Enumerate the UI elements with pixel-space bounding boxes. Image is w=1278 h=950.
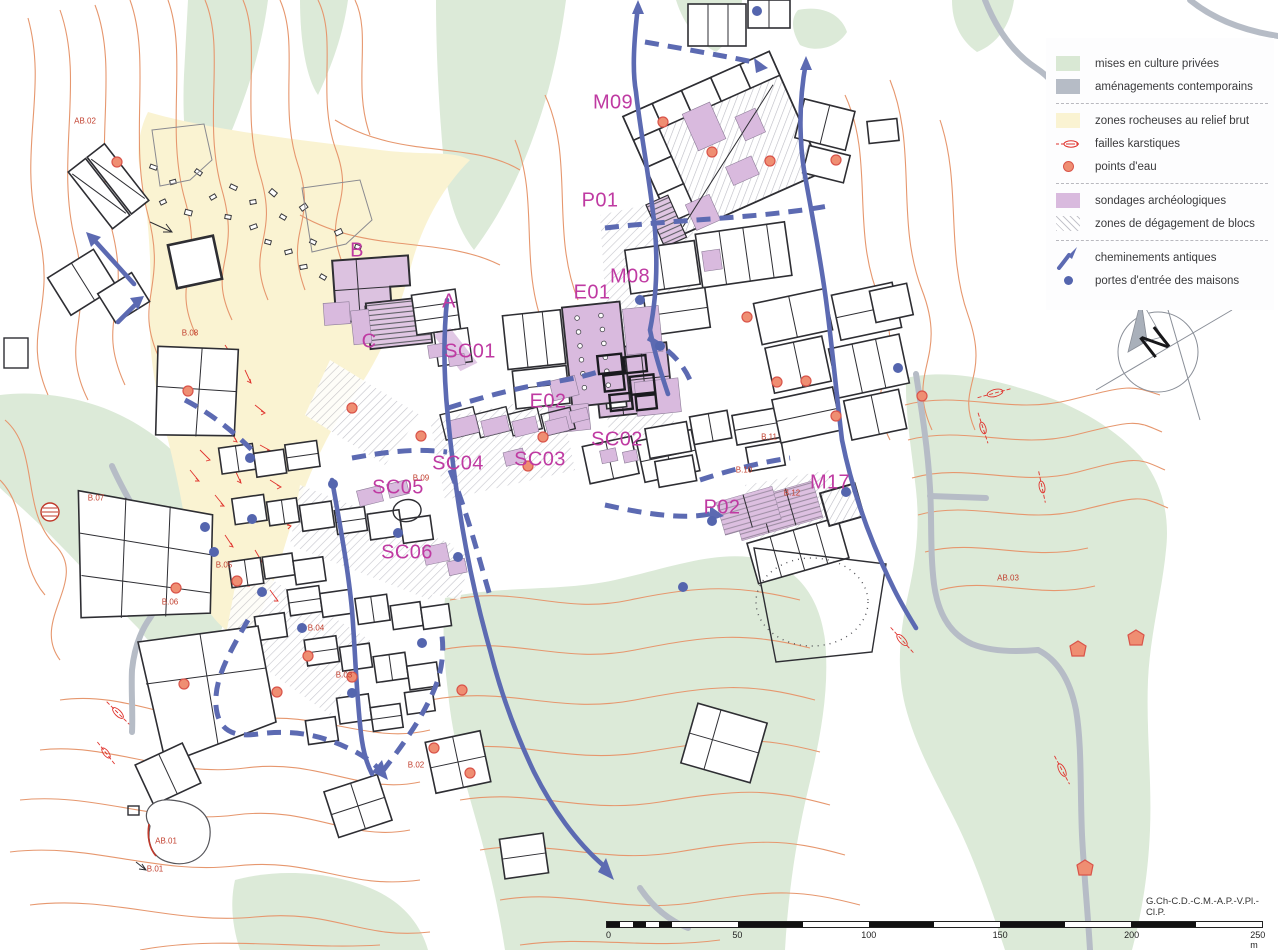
sector-label-m17: M17	[810, 472, 850, 495]
faille-symbol-icon	[1056, 138, 1080, 150]
sector-label-sc01: SC01	[444, 341, 496, 364]
feature-label-b05: B.05	[216, 561, 232, 570]
sector-label-e02: E02	[530, 391, 567, 414]
legend-label: cheminements antiques	[1095, 252, 1216, 264]
sector-label-m09: M09	[593, 92, 633, 115]
legend-row-cultures: mises en culture privées	[1056, 56, 1270, 71]
gray-swatch-icon	[1056, 79, 1080, 94]
feature-label-b12: B.12	[784, 489, 800, 498]
sector-label-m08: M08	[610, 266, 650, 289]
sector-label-sc04: SC04	[432, 453, 484, 476]
building-sw3	[499, 833, 548, 879]
building-sw2	[425, 731, 491, 794]
legend-divider	[1056, 240, 1268, 241]
north-compass: N	[1096, 296, 1232, 420]
scale-tick: 0	[606, 930, 611, 940]
legend-row-rocheuses: zones rocheuses au relief brut	[1056, 113, 1270, 128]
legend-label: aménagements contemporains	[1095, 81, 1253, 93]
sw-enclosure	[138, 626, 276, 764]
legend-row-degagement: zones de dégagement de blocs	[1056, 216, 1270, 231]
building-nw	[48, 239, 150, 341]
sector-label-b: B	[350, 240, 364, 263]
scale-bar-ticks: 0 50 100 150 200 250 m	[606, 928, 1263, 940]
legend-divider	[1056, 183, 1268, 184]
scale-tick: 150	[993, 930, 1008, 940]
water-dot-icon	[1063, 161, 1074, 172]
legend-divider	[1056, 103, 1268, 104]
feature-label-b10: B.10	[736, 466, 752, 475]
hatch-swatch-icon	[1056, 216, 1080, 231]
legend-row-amenagements: aménagements contemporains	[1056, 79, 1270, 94]
feature-label-b09: B.09	[413, 474, 429, 483]
sector-label-p01: P01	[582, 190, 619, 213]
legend-row-sondages: sondages archéologiques	[1056, 193, 1270, 208]
feature-label-b03: B.03	[336, 671, 352, 680]
building-ab02	[68, 144, 149, 229]
green-swatch-icon	[1056, 56, 1080, 71]
legend-row-cheminements: cheminements antiques	[1056, 250, 1270, 265]
scale-tick: 200	[1124, 930, 1139, 940]
sector-label-e01: E01	[574, 282, 611, 305]
east-cluster	[751, 272, 936, 455]
feature-label-ab01: AB.01	[155, 837, 177, 846]
scale-tick: 250 m	[1250, 930, 1265, 950]
sector-label-c: C	[362, 331, 377, 354]
feature-label-b04: B.04	[308, 624, 324, 633]
legend-row-failles: failles karstiques	[1056, 136, 1270, 151]
legend-label: failles karstiques	[1095, 138, 1180, 150]
feature-label-b11: B.11	[761, 433, 777, 442]
feature-label-b01: B.01	[147, 865, 163, 874]
feature-label-ab03: AB.03	[997, 574, 1019, 583]
sector-label-p02: P02	[704, 497, 741, 520]
feature-label-b07: B.07	[88, 494, 104, 503]
feature-label-ab02: AB.02	[74, 117, 96, 126]
sector-label-a: A	[442, 291, 456, 314]
feature-label-b06: B.06	[162, 598, 178, 607]
purple-swatch-icon	[1056, 193, 1080, 208]
scale-tick: 100	[861, 930, 876, 940]
archaeological-site-map: N mises en culture privées aménagements …	[0, 0, 1278, 950]
building-b07	[65, 491, 221, 631]
legend-label: portes d'entrée des maisons	[1095, 275, 1239, 287]
legend-label: mises en culture privées	[1095, 58, 1219, 70]
scale-bar-segments	[606, 921, 1263, 928]
blue-path-icon	[1056, 246, 1080, 270]
legend-row-portes: portes d'entrée des maisons	[1056, 273, 1270, 288]
scale-bar: 0 50 100 150 200 250 m	[606, 921, 1263, 940]
legend-label: points d'eau	[1095, 161, 1157, 173]
yellow-swatch-icon	[1056, 113, 1080, 128]
legend-label: zones de dégagement de blocs	[1095, 218, 1255, 230]
legend-label: zones rocheuses au relief brut	[1095, 115, 1249, 127]
feature-label-b08: B.08	[182, 329, 198, 338]
legend-label: sondages archéologiques	[1095, 195, 1226, 207]
feature-label-b02: B.02	[408, 761, 424, 770]
sector-label-sc03: SC03	[514, 449, 566, 472]
map-legend: mises en culture privées aménagements co…	[1046, 38, 1274, 310]
scale-tick: 50	[732, 930, 742, 940]
sector-label-sc02: SC02	[591, 429, 643, 452]
sector-label-sc06: SC06	[381, 542, 433, 565]
credit-text: G.Ch-C.D.-C.M.-A.P.-V.Pl.-Cl.P.	[1146, 896, 1278, 918]
blue-dot-icon	[1064, 276, 1073, 285]
legend-row-eau: points d'eau	[1056, 159, 1270, 174]
